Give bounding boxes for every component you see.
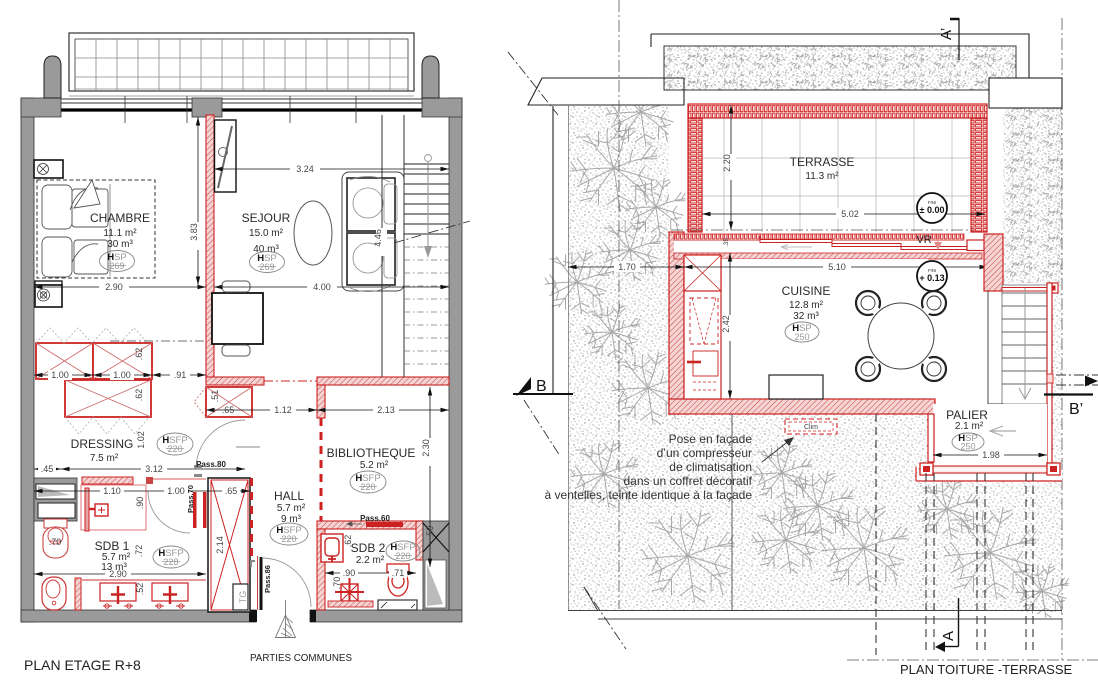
svg-text:1.10: 1.10	[103, 486, 121, 496]
svg-text:1.70: 1.70	[618, 262, 636, 272]
svg-text:Pass.70: Pass.70	[186, 485, 195, 513]
svg-text:250: 250	[960, 442, 975, 452]
svg-text:CUISINE: CUISINE	[782, 284, 831, 298]
svg-text:.62: .62	[134, 389, 144, 402]
svg-text:3.12: 3.12	[145, 464, 163, 474]
svg-text:B’: B’	[1069, 401, 1083, 418]
svg-text:220: 220	[360, 482, 375, 492]
svg-text:.65: .65	[222, 405, 235, 415]
svg-text:+ 0.13: + 0.13	[919, 273, 944, 283]
svg-text:.71: .71	[392, 568, 405, 578]
svg-text:.50: .50	[425, 526, 435, 539]
svg-text:PARTIES COMMUNES: PARTIES COMMUNES	[250, 653, 352, 664]
svg-text:Pass.80: Pass.80	[196, 460, 226, 469]
svg-text:4.00: 4.00	[313, 282, 331, 292]
svg-text:PALIER: PALIER	[946, 408, 988, 422]
svg-text:.91: .91	[174, 370, 187, 380]
svg-text:à ventelles, teinte identique: à ventelles, teinte identique à la façad…	[545, 488, 753, 502]
svg-text:13 m³: 13 m³	[101, 562, 127, 573]
svg-text:2.42: 2.42	[721, 315, 731, 333]
svg-text:DRESSING: DRESSING	[71, 437, 134, 451]
svg-text:TERRASSE: TERRASSE	[790, 155, 855, 169]
svg-text:.90: .90	[135, 497, 145, 510]
svg-text:2.20: 2.20	[722, 154, 732, 172]
svg-text:.45: .45	[41, 464, 54, 474]
svg-text:.52: .52	[135, 583, 145, 596]
svg-text:Clim: Clim	[804, 424, 818, 431]
svg-text:5.7 m²: 5.7 m²	[277, 503, 306, 514]
svg-text:.72: .72	[134, 545, 144, 558]
svg-text:PLAN ETAGE R+8: PLAN ETAGE R+8	[24, 657, 141, 673]
svg-text:12.8 m²: 12.8 m²	[789, 300, 824, 311]
svg-text:5.2 m²: 5.2 m²	[360, 460, 389, 471]
svg-text:2.1 m²: 2.1 m²	[955, 421, 984, 432]
svg-text:1.12: 1.12	[274, 405, 292, 415]
svg-text:2.14: 2.14	[215, 536, 225, 554]
svg-text:11.1 m²: 11.1 m²	[103, 228, 137, 239]
svg-text:CHAMBRE: CHAMBRE	[90, 211, 150, 225]
svg-text:11.3 m²: 11.3 m²	[805, 171, 839, 182]
svg-text:.35: .35	[723, 238, 730, 247]
svg-text:1.02: 1.02	[136, 431, 146, 449]
svg-text:5.02: 5.02	[841, 209, 859, 219]
svg-text:Pass.60: Pass.60	[360, 514, 390, 523]
svg-text:.70: .70	[49, 537, 62, 547]
svg-text:1.00: 1.00	[167, 486, 185, 496]
svg-text:Pose en façade: Pose en façade	[669, 432, 753, 446]
svg-text:.62: .62	[134, 348, 144, 361]
svg-text:d’un compresseur: d’un compresseur	[657, 446, 752, 460]
svg-text:Pass.86: Pass.86	[263, 565, 272, 593]
svg-text:250: 250	[794, 332, 809, 342]
svg-text:.70: .70	[332, 577, 342, 590]
svg-text:B: B	[536, 378, 547, 395]
svg-text:5.10: 5.10	[828, 262, 846, 272]
svg-text:30 m³: 30 m³	[107, 239, 133, 250]
svg-text:220: 220	[281, 534, 296, 544]
svg-text:.51: .51	[210, 390, 220, 403]
svg-text:A’: A’	[938, 28, 955, 40]
svg-text:VR: VR	[916, 234, 931, 246]
svg-text:A: A	[940, 631, 957, 641]
svg-text:2.2 m²: 2.2 m²	[356, 555, 385, 566]
svg-text:2.30: 2.30	[421, 439, 431, 457]
svg-text:de climatisation: de climatisation	[669, 460, 752, 474]
svg-text:15.0 m²: 15.0 m²	[249, 228, 284, 239]
svg-text:TG: TG	[238, 591, 248, 604]
svg-text:220: 220	[167, 444, 182, 454]
svg-text:± 0.00: ± 0.00	[920, 205, 945, 215]
svg-text:3.24: 3.24	[296, 164, 314, 174]
svg-text:269: 269	[259, 262, 274, 272]
svg-text:228: 228	[163, 557, 178, 567]
svg-text:7.5 m²: 7.5 m²	[90, 453, 119, 464]
svg-text:SEJOUR: SEJOUR	[242, 211, 291, 225]
svg-text:4.46: 4.46	[373, 229, 383, 247]
svg-text:.90: .90	[343, 568, 356, 578]
svg-text:220: 220	[395, 551, 410, 561]
svg-text:HALL: HALL	[274, 489, 304, 503]
svg-text:2.90: 2.90	[105, 282, 123, 292]
svg-text:32 m³: 32 m³	[793, 311, 819, 322]
svg-text:SDB 2: SDB 2	[351, 541, 386, 555]
svg-text:1.00: 1.00	[51, 370, 69, 380]
svg-text:1.98: 1.98	[982, 450, 1000, 460]
svg-text:SDB 1: SDB 1	[95, 539, 130, 553]
svg-text:.65: .65	[225, 486, 238, 496]
svg-text:3.83: 3.83	[189, 223, 199, 241]
svg-text:1.00: 1.00	[113, 370, 131, 380]
svg-text:PLAN TOITURE -TERRASSE: PLAN TOITURE -TERRASSE	[900, 662, 1072, 677]
svg-text:2.13: 2.13	[377, 405, 395, 415]
svg-text:269: 269	[109, 261, 124, 271]
svg-text:dans un coffret décoratif: dans un coffret décoratif	[623, 474, 752, 488]
svg-text:BIBLIOTHEQUE: BIBLIOTHEQUE	[327, 446, 416, 460]
